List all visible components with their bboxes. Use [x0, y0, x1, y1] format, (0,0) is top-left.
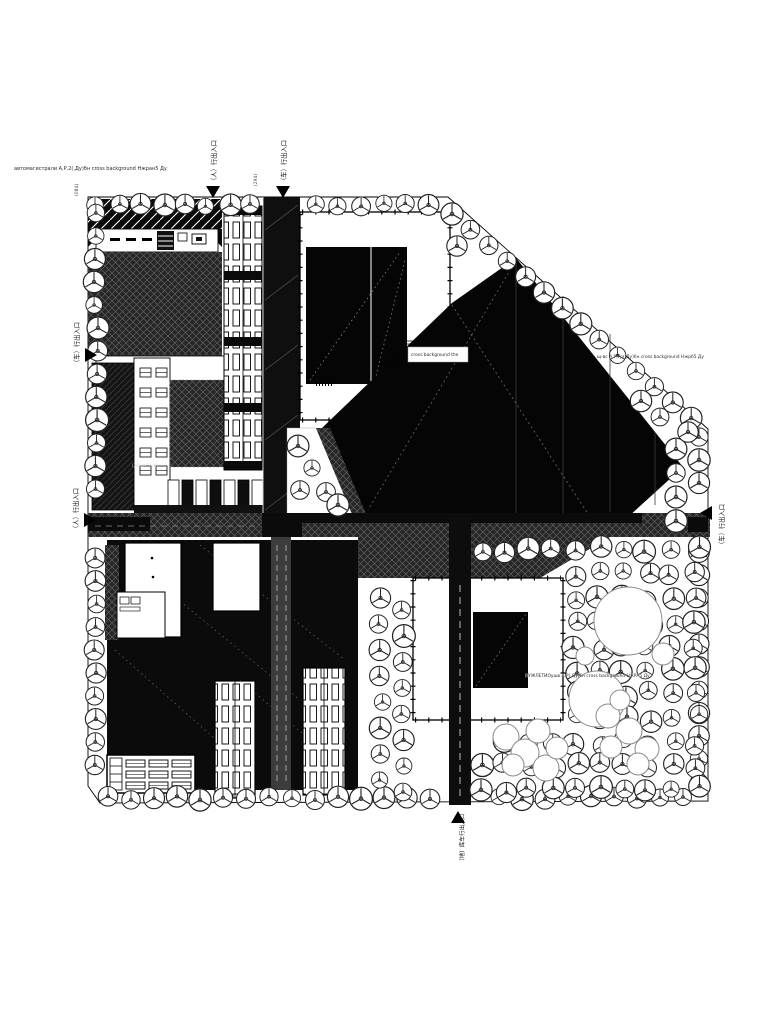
tree-icon — [350, 787, 373, 810]
tree-icon — [641, 563, 661, 583]
tree-icon — [516, 267, 536, 287]
parking-strip-north — [224, 206, 262, 470]
tree-icon — [664, 754, 684, 774]
tree-icon — [327, 786, 348, 807]
tree-icon — [517, 778, 536, 797]
tree-icon — [541, 539, 560, 558]
tree-icon — [471, 754, 494, 777]
roof-label-text: cross background the — [411, 352, 459, 358]
tree-icon — [98, 787, 118, 807]
tree-icon — [689, 775, 711, 797]
tree-icon — [663, 709, 680, 726]
entrance-bottom-garage: （地）库车行出入口 — [451, 811, 466, 864]
entrance-label: （地）库车行出入口 — [458, 814, 466, 864]
site-plan-page: （人）行出入口 （车）行出入口 （车）行出入口 （人）行出入口 （车）行出入口 … — [0, 0, 768, 1024]
fixture-cabinet — [157, 231, 174, 250]
car-unit — [196, 480, 207, 508]
landscape-circle — [526, 719, 550, 743]
tree-icon — [517, 537, 539, 559]
tree-icon — [87, 204, 104, 221]
parking-separator — [224, 461, 262, 470]
tree-icon — [373, 787, 395, 809]
tree-icon — [663, 588, 685, 610]
tree-icon — [86, 687, 104, 705]
tree-icon — [461, 220, 480, 239]
tree-icon — [85, 548, 105, 568]
tree-icon — [684, 639, 702, 657]
tree-icon — [372, 772, 388, 788]
tree-icon — [393, 653, 412, 672]
tree-icon — [533, 282, 554, 303]
dim-label-b: (294) — [253, 174, 259, 186]
tree-icon — [166, 786, 187, 807]
tree-icon — [87, 317, 109, 339]
top-left-annotation: автомагистрали А,Р,2(,Ду)бн cross backgr… — [14, 166, 167, 172]
car-units-row — [168, 480, 263, 508]
plaza-hatch — [88, 252, 222, 358]
tree-icon — [441, 203, 463, 225]
tree-icon — [87, 364, 107, 384]
tree-icon — [552, 297, 574, 319]
tree-icon — [663, 781, 679, 797]
tree-icon — [393, 601, 411, 619]
tree-icon — [284, 790, 301, 807]
tree-icon — [220, 194, 242, 216]
tree-icon — [664, 684, 683, 703]
tree-icon — [197, 198, 213, 214]
parking-separator — [224, 403, 262, 412]
tree-icon — [175, 194, 195, 214]
tree-icon — [144, 788, 165, 809]
tree-icon — [568, 592, 585, 609]
tree-icon — [374, 694, 390, 710]
tree-icon — [154, 194, 176, 216]
tree-icon — [616, 541, 632, 557]
tree-icon — [370, 588, 390, 608]
tree-icon — [687, 684, 704, 701]
landscape-circle — [627, 753, 649, 775]
tree-icon — [287, 435, 309, 457]
tree-icon — [420, 789, 440, 809]
tree-icon — [566, 567, 586, 587]
tree-icon — [237, 789, 256, 808]
tree-icon — [665, 486, 687, 508]
roof-label-box: cross background the — [408, 347, 468, 362]
entrance-label: （车）行出入口 — [717, 504, 726, 548]
district-southwest — [105, 537, 358, 798]
tree-icon — [85, 755, 104, 774]
tree-icon — [480, 236, 498, 254]
tree-icon — [304, 460, 320, 476]
parking-separator — [224, 337, 262, 346]
arrow-down-icon — [276, 186, 290, 198]
tree-icon — [665, 510, 688, 533]
tree-icon — [685, 562, 704, 581]
car-unit — [168, 480, 179, 508]
tree-icon — [667, 733, 684, 750]
tree-icon — [130, 193, 151, 214]
arrow-down-icon — [206, 186, 220, 198]
tree-icon — [570, 313, 592, 335]
car-unit — [210, 480, 221, 508]
tree-icon — [569, 612, 587, 630]
tree-icon — [85, 709, 106, 730]
entrance-label: （人）行出入口 — [71, 488, 80, 532]
entrance-label: （车）行出入口 — [279, 140, 288, 184]
tree-icon — [627, 362, 644, 379]
landscape-circle — [576, 647, 594, 665]
tree-icon — [630, 390, 651, 411]
tree-icon — [371, 745, 389, 763]
tree-icon — [84, 640, 104, 660]
tree-icon — [291, 481, 310, 500]
tree-icon — [496, 782, 516, 802]
tree-icon — [470, 779, 492, 801]
landscape-circle — [600, 736, 622, 758]
bottom-mid-annotation: ВУЖЛЕТИОушв А,Р(,Ду)бн cross background … — [525, 672, 650, 679]
building-core — [473, 612, 528, 688]
parking-note: (20 ме(1) (в) — [132, 463, 158, 468]
landscape-circle — [652, 643, 674, 665]
tree-icon — [635, 780, 656, 801]
tree-icon — [690, 706, 707, 723]
tree-icon — [686, 737, 704, 755]
tree-icon — [616, 780, 634, 798]
tree-icon — [393, 729, 414, 750]
landscape-circle — [594, 587, 662, 655]
road-south-vertical — [449, 513, 471, 805]
tree-icon — [592, 562, 609, 579]
tree-icon — [639, 681, 657, 699]
tree-icon — [394, 783, 412, 801]
landscape-circle — [546, 737, 568, 759]
tree-icon — [88, 595, 106, 613]
entrance-top-vehicle: （车）行出入口 — [276, 140, 290, 198]
tree-icon — [568, 753, 589, 774]
right-mid-annotation: щ-вс А,Р,Ур(,Ду)бн cross background Нжрб… — [597, 353, 704, 360]
tree-icon — [85, 455, 106, 476]
car-unit — [252, 480, 263, 508]
tree-icon — [260, 788, 278, 806]
tree-icon — [689, 536, 711, 558]
tree-icon — [447, 236, 467, 256]
tree-icon — [393, 625, 416, 648]
tree-icon — [376, 195, 392, 211]
tree-icon — [659, 565, 679, 585]
tree-icon — [87, 480, 105, 498]
road-sw-vertical — [271, 537, 291, 790]
tree-icon — [86, 733, 104, 751]
tree-icon — [86, 618, 105, 637]
tree-icon — [590, 330, 609, 349]
entrance-label: （车）行出入口 — [72, 322, 81, 366]
tree-icon — [86, 297, 103, 314]
tree-icon — [394, 680, 411, 697]
tree-icon — [241, 195, 260, 214]
tree-icon — [418, 195, 439, 216]
tree-icon — [327, 494, 349, 516]
tree-icon — [369, 615, 387, 633]
tree-icon — [590, 776, 613, 799]
tree-icon — [88, 434, 106, 452]
car-unit — [182, 480, 193, 508]
tree-icon — [88, 228, 104, 244]
entrance-top-pedestrian: （人）行出入口 — [206, 140, 220, 198]
tree-icon — [651, 408, 669, 426]
parking-separator — [224, 271, 262, 280]
tree-icon — [498, 252, 516, 270]
tree-icon — [615, 563, 631, 579]
tree-icon — [307, 196, 324, 213]
tree-icon — [688, 449, 710, 471]
tree-icon — [633, 540, 656, 563]
tree-icon — [86, 409, 109, 432]
tree-icon — [369, 717, 391, 739]
tree-icon — [662, 541, 680, 559]
landscape-circle — [502, 754, 524, 776]
tree-icon — [566, 778, 585, 797]
tree-icon — [686, 759, 705, 778]
tree-icon — [306, 791, 325, 810]
tree-icon — [352, 197, 371, 216]
tree-icon — [684, 657, 706, 679]
entrance-label: （人）行出入口 — [209, 140, 218, 184]
tree-icon — [393, 705, 410, 722]
car-unit — [238, 480, 249, 508]
tree-icon — [370, 666, 389, 685]
tree-icon — [667, 464, 685, 482]
tree-icon — [396, 758, 412, 774]
tree-icon — [686, 588, 706, 608]
site-plan-drawing: （人）行出入口 （车）行出入口 （车）行出入口 （人）行出入口 （车）行出入口 … — [0, 0, 768, 1024]
dim-label-a: (084) — [74, 184, 80, 196]
road-main-horizontal — [88, 513, 710, 537]
tree-icon — [396, 195, 414, 213]
tree-icon — [214, 788, 233, 807]
tree-icon — [86, 663, 106, 683]
tree-icon — [83, 271, 104, 292]
tree-icon — [369, 639, 390, 660]
tree-icon — [667, 616, 684, 633]
tree-icon — [640, 711, 661, 732]
tree-icon — [86, 386, 107, 407]
white-building-2 — [213, 543, 260, 611]
tree-icon — [688, 472, 709, 493]
tree-icon — [683, 611, 705, 633]
tree-icon — [85, 571, 106, 592]
tree-icon — [189, 789, 211, 811]
tree-icon — [566, 541, 585, 560]
tree-icon — [678, 422, 698, 442]
car-unit — [224, 480, 235, 508]
tree-icon — [111, 195, 129, 213]
tree-icon — [122, 791, 140, 809]
tree-icon — [591, 536, 612, 557]
tree-icon — [84, 249, 105, 270]
tree-icon — [329, 198, 346, 215]
landscape-circle — [610, 690, 630, 710]
tree-icon — [474, 543, 492, 561]
tree-icon — [494, 543, 514, 563]
